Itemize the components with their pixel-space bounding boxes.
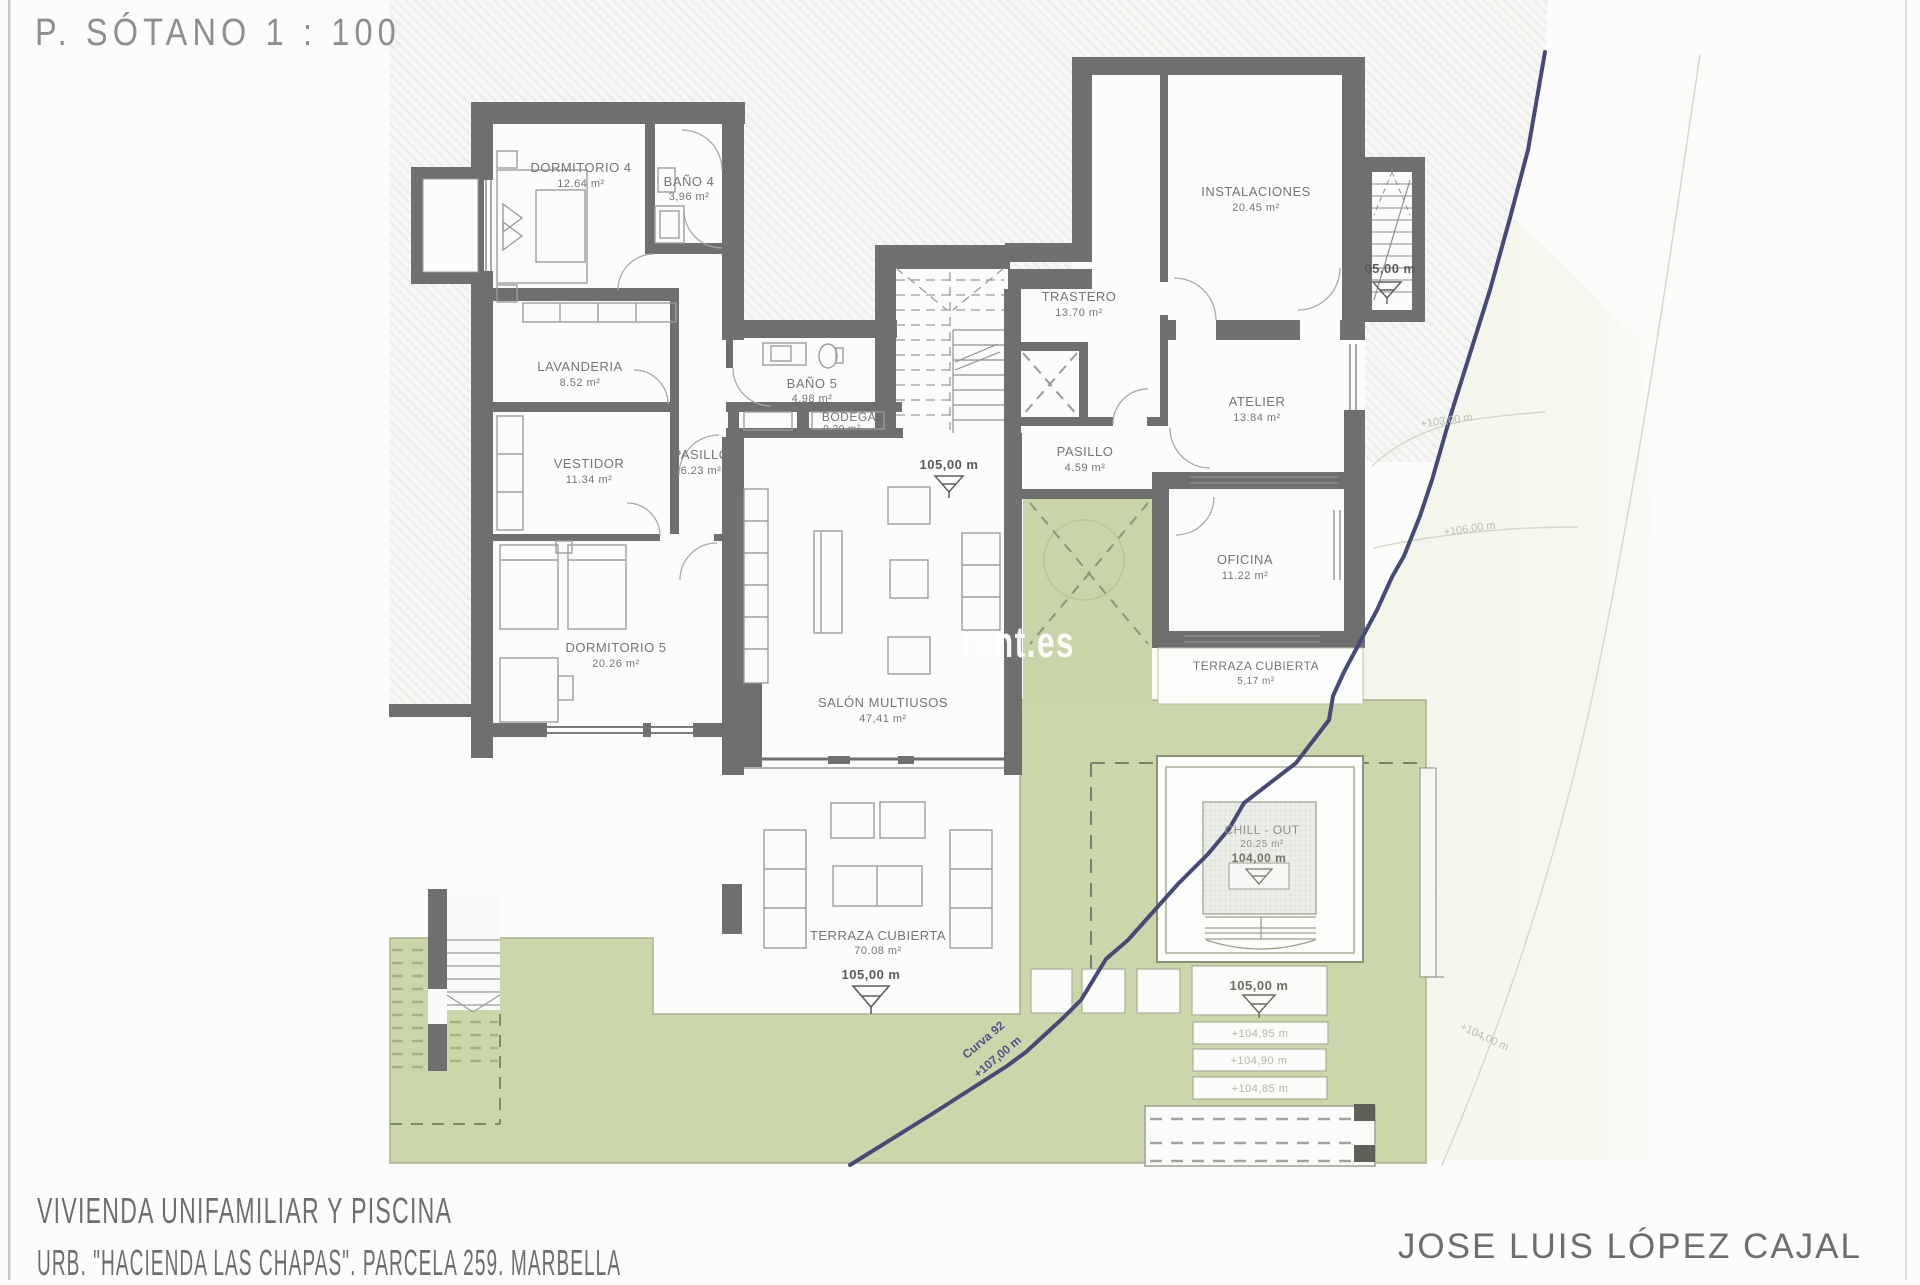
svg-text:JOSE LUIS LÓPEZ CAJAL: JOSE LUIS LÓPEZ CAJAL <box>1398 1227 1862 1266</box>
svg-text:BAÑO 4: BAÑO 4 <box>664 174 715 189</box>
svg-text:70.08 m²: 70.08 m² <box>854 945 901 957</box>
svg-text:20.25 m²: 20.25 m² <box>1240 839 1284 850</box>
svg-text:DORMITORIO 5: DORMITORIO 5 <box>565 640 666 655</box>
svg-text:8.52 m²: 8.52 m² <box>560 377 601 389</box>
svg-text:BAÑO 5: BAÑO 5 <box>787 376 838 391</box>
svg-text:rent.es: rent.es <box>961 618 1075 667</box>
svg-text:20.45 m²: 20.45 m² <box>1232 202 1279 214</box>
svg-text:DORMITORIO 4: DORMITORIO 4 <box>530 160 631 175</box>
svg-text:4.98 m²: 4.98 m² <box>792 393 833 405</box>
svg-text:13.84 m²: 13.84 m² <box>1233 412 1280 424</box>
svg-text:6.23 m²: 6.23 m² <box>681 465 722 477</box>
svg-text:URB. "HACIENDA LAS CHAPAS". PA: URB. "HACIENDA LAS CHAPAS". PARCELA 259.… <box>37 1244 621 1280</box>
svg-text:11.34 m²: 11.34 m² <box>566 474 613 486</box>
svg-text:PASILLO: PASILLO <box>673 447 730 462</box>
svg-text:INSTALACIONES: INSTALACIONES <box>1201 184 1311 199</box>
svg-text:+104,85 m: +104,85 m <box>1232 1083 1289 1095</box>
svg-text:CHILL - OUT: CHILL - OUT <box>1224 823 1299 837</box>
svg-text:20.26 m²: 20.26 m² <box>592 658 639 670</box>
svg-text:105,00 m: 105,00 m <box>842 967 901 982</box>
svg-text:LAVANDERIA: LAVANDERIA <box>537 359 622 374</box>
svg-text:+104,95 m: +104,95 m <box>1232 1028 1289 1040</box>
svg-text:3,96 m²: 3,96 m² <box>669 191 710 203</box>
svg-text:0,20 m²: 0,20 m² <box>823 424 861 435</box>
svg-text:TERRAZA CUBIERTA: TERRAZA CUBIERTA <box>810 928 946 943</box>
svg-text:11.22 m²: 11.22 m² <box>1222 570 1269 582</box>
svg-text:OFICINA: OFICINA <box>1217 552 1273 567</box>
svg-text:105,00 m: 105,00 m <box>920 457 979 472</box>
svg-text:47,41 m²: 47,41 m² <box>859 713 906 725</box>
svg-text:SALÓN MULTIUSOS: SALÓN MULTIUSOS <box>818 695 948 710</box>
svg-text:4.59 m²: 4.59 m² <box>1065 462 1106 474</box>
svg-text:ATELIER: ATELIER <box>1229 394 1286 409</box>
svg-text:104,00 m: 104,00 m <box>1232 851 1287 865</box>
svg-text:+104,90 m: +104,90 m <box>1231 1055 1288 1067</box>
svg-text:05,00 m: 05,00 m <box>1364 261 1415 276</box>
svg-text:TERRAZA CUBIERTA: TERRAZA CUBIERTA <box>1193 659 1319 673</box>
svg-text:105,00 m: 105,00 m <box>1230 978 1289 993</box>
svg-text:VIVIENDA UNIFAMILIAR Y PISCINA: VIVIENDA UNIFAMILIAR Y PISCINA <box>37 1192 452 1231</box>
svg-text:BODEGA: BODEGA <box>822 410 876 424</box>
svg-text:PASILLO: PASILLO <box>1057 444 1114 459</box>
svg-text:P. SÓTANO 1 : 100: P. SÓTANO 1 : 100 <box>35 12 401 54</box>
svg-text:5,17 m²: 5,17 m² <box>1237 676 1275 687</box>
svg-text:VESTIDOR: VESTIDOR <box>554 456 624 471</box>
svg-text:TRASTERO: TRASTERO <box>1042 289 1117 304</box>
svg-text:13.70 m²: 13.70 m² <box>1055 307 1102 319</box>
svg-text:12.64 m²: 12.64 m² <box>557 178 604 190</box>
